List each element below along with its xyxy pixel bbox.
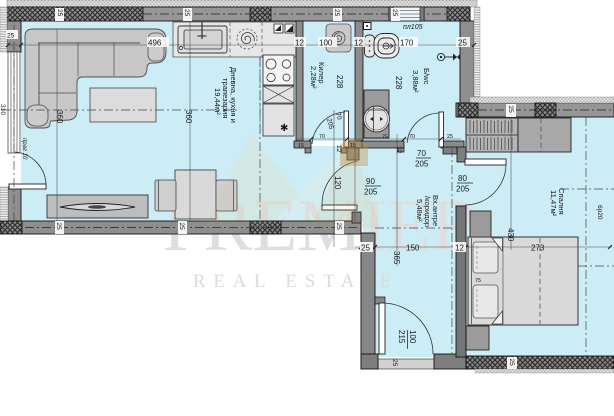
svg-text:2,28м²: 2,28м² xyxy=(309,66,318,89)
svg-text:6р20: 6р20 xyxy=(596,205,603,220)
svg-text:25: 25 xyxy=(333,9,340,17)
svg-text:11,47м²: 11,47м² xyxy=(549,190,558,217)
svg-text:215: 215 xyxy=(397,330,406,344)
svg-text:360: 360 xyxy=(55,110,64,124)
svg-text:12: 12 xyxy=(354,39,363,48)
svg-text:100: 100 xyxy=(408,330,417,344)
svg-text:Б/wc: Б/wc xyxy=(422,68,431,85)
svg-text:70: 70 xyxy=(417,149,426,158)
svg-text:25: 25 xyxy=(178,223,185,231)
svg-text:15: 15 xyxy=(298,143,304,149)
svg-text:12: 12 xyxy=(335,145,342,153)
svg-text:170: 170 xyxy=(400,39,414,48)
svg-text:25: 25 xyxy=(55,223,62,231)
svg-text:12: 12 xyxy=(395,146,402,154)
svg-text:365: 365 xyxy=(392,251,401,265)
svg-text:360: 360 xyxy=(184,110,193,124)
svg-text:25: 25 xyxy=(447,134,453,140)
svg-text:25: 25 xyxy=(391,9,398,17)
svg-text:15: 15 xyxy=(350,143,356,149)
svg-text:430: 430 xyxy=(506,228,515,242)
svg-text:75: 75 xyxy=(475,278,481,284)
svg-text:100: 100 xyxy=(319,39,333,48)
svg-text:273: 273 xyxy=(531,244,545,253)
svg-text:12: 12 xyxy=(295,39,304,48)
svg-text:70: 70 xyxy=(319,134,325,140)
svg-text:25: 25 xyxy=(335,223,342,231)
svg-text:228: 228 xyxy=(335,75,344,89)
svg-text:205: 205 xyxy=(415,160,429,169)
svg-text:25: 25 xyxy=(508,359,515,367)
svg-text:25: 25 xyxy=(361,244,370,253)
svg-text:205: 205 xyxy=(456,185,470,194)
svg-text:19,44м²: 19,44м² xyxy=(213,88,222,115)
svg-text:120: 120 xyxy=(333,176,342,190)
svg-text:25: 25 xyxy=(458,39,467,48)
svg-text:✱: ✱ xyxy=(280,123,288,134)
svg-text:25: 25 xyxy=(507,106,514,114)
svg-text:70: 70 xyxy=(409,134,415,140)
svg-text:205: 205 xyxy=(364,188,378,197)
svg-text:25: 25 xyxy=(7,33,15,40)
svg-text:75: 75 xyxy=(382,135,388,141)
svg-text:пл105: пл105 xyxy=(403,24,423,31)
svg-text:12: 12 xyxy=(455,244,464,253)
svg-text:80: 80 xyxy=(458,174,467,183)
svg-text:25: 25 xyxy=(183,9,190,17)
svg-text:25: 25 xyxy=(56,9,63,17)
svg-text:праг 10: праг 10 xyxy=(21,138,27,160)
svg-text:496: 496 xyxy=(148,39,162,48)
svg-text:5,48м²: 5,48м² xyxy=(415,199,424,222)
svg-text:3,88м²: 3,88м² xyxy=(411,70,420,93)
svg-text:150: 150 xyxy=(406,244,420,253)
svg-text:228: 228 xyxy=(394,76,403,90)
svg-text:90: 90 xyxy=(366,177,375,186)
svg-text:25: 25 xyxy=(391,359,398,367)
svg-text:310: 310 xyxy=(0,104,6,115)
